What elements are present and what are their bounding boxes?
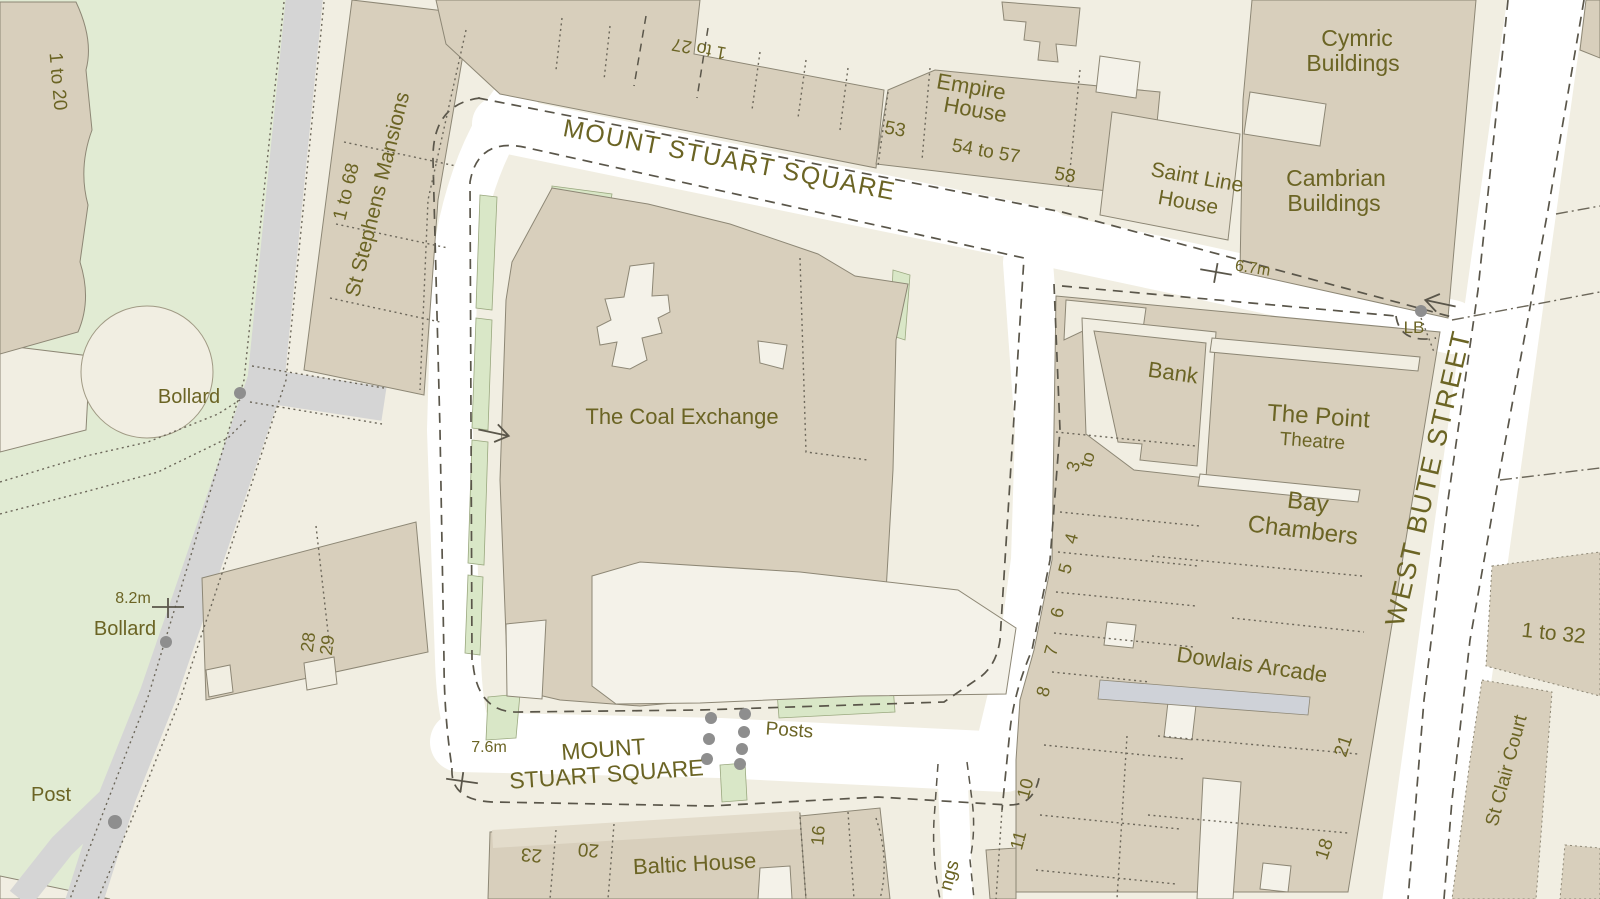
bollard-lower-dot xyxy=(160,636,172,648)
label-bld-cambrian-buildings-1: Cambrian xyxy=(1286,165,1386,191)
posts-dot-6 xyxy=(736,743,748,755)
label-num-20: 20 xyxy=(577,838,600,861)
posts-dot-2 xyxy=(703,733,715,745)
label-ann-lb: LB xyxy=(1404,318,1425,337)
post-dot xyxy=(108,815,122,829)
label-bld-cambrian-buildings-2: Buildings xyxy=(1287,190,1380,216)
posts-dot-4 xyxy=(739,708,751,720)
building-east-of-alley xyxy=(986,848,1016,899)
posts-dot-7 xyxy=(734,758,746,770)
label-bld-coal-exchange: The Coal Exchange xyxy=(585,404,778,429)
label-ann-post: Post xyxy=(31,784,71,806)
label-num-23: 23 xyxy=(520,843,543,866)
park-circle-feature xyxy=(81,306,213,438)
label-num-58: 58 xyxy=(1053,163,1077,187)
label-height-8-2m: 8.2m xyxy=(115,590,151,607)
label-ann-bollard-top: Bollard xyxy=(158,386,220,408)
road-mount-stuart-square-south xyxy=(460,742,1005,762)
building-pale-block xyxy=(1096,56,1140,98)
map-canvas[interactable]: MOUNT STUART SQUAREMOUNTSTUART SQUAREWES… xyxy=(0,0,1600,899)
label-ann-bollard-lower: Bollard xyxy=(94,618,156,640)
posts-dot-1 xyxy=(705,712,717,724)
label-num-16: 16 xyxy=(807,825,829,847)
label-height-7-6m: 7.6m xyxy=(471,739,507,756)
label-bld-cymric-buildings-1: Cymric xyxy=(1321,25,1393,51)
label-bld-bay-chambers-1: Bay xyxy=(1286,487,1330,519)
label-num-29: 29 xyxy=(316,634,339,657)
building-16 xyxy=(800,808,890,899)
label-bld-cymric-buildings-2: Buildings xyxy=(1306,50,1399,76)
posts-dot-5 xyxy=(738,726,750,738)
lb-dot xyxy=(1415,305,1427,317)
building-se-corner xyxy=(1560,845,1600,899)
label-ann-posts: Posts xyxy=(765,718,814,742)
bollard-top-dot xyxy=(234,387,246,399)
label-num-53: 53 xyxy=(883,117,907,141)
